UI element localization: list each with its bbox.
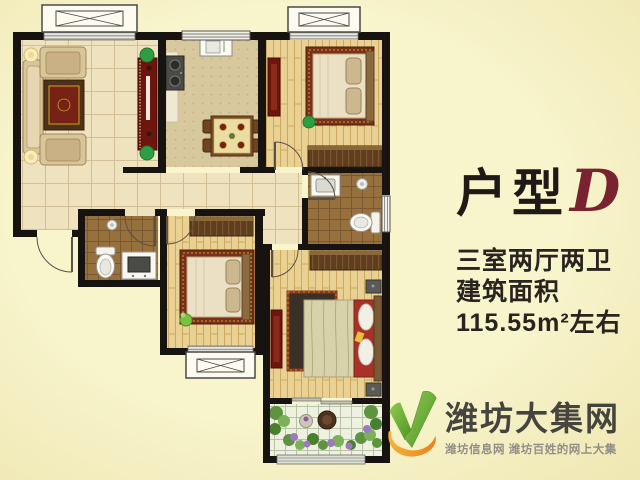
spec-rooms: 三室两厅两卫 [456, 246, 622, 277]
balcony-sliding-door [292, 398, 352, 404]
bathroom2-toilet [350, 212, 380, 233]
bathroom1-vanity [122, 252, 156, 279]
title-letter-d: D [570, 160, 620, 224]
specs-block: 三室两厅两卫 建筑面积 115.55m²左右 [456, 246, 622, 339]
spec-area-value: 115.55m²左右 [456, 308, 622, 339]
bedroom1-wardrobe [308, 146, 382, 167]
bathroom1-toilet [96, 247, 115, 278]
bedroom2-wardrobe [190, 217, 253, 236]
bedroom1-tv-cabinet [268, 58, 280, 116]
master-tv-cabinet [271, 310, 282, 368]
site-name: 潍坊大集网 [445, 402, 620, 437]
shower-head-icon [357, 179, 368, 190]
title-text: 户型 [456, 166, 568, 222]
stove [166, 56, 184, 90]
watermark-text: 潍坊大集网 潍坊信息网 潍坊百姓的网上大集 [445, 390, 620, 457]
kitchen-sink [200, 38, 232, 56]
bay-window-bedroom2 [186, 346, 255, 378]
page-title: 户型 D [456, 166, 620, 230]
coffee-table [44, 80, 84, 130]
master-bed [288, 292, 382, 381]
watermark-logo: 潍坊大集网 潍坊信息网 潍坊百姓的网上大集 [384, 390, 620, 460]
shower-head-2-icon [107, 220, 117, 230]
balcony-railing-window [277, 455, 365, 464]
bay-window-living [42, 5, 137, 40]
tv-cabinet [138, 48, 157, 160]
dining-table [203, 116, 261, 156]
bedroom1-bed [306, 47, 374, 125]
spec-area-label: 建筑面积 [456, 277, 622, 308]
hallway-floor [158, 173, 302, 209]
kitchen-window [182, 31, 250, 40]
master-wardrobe [310, 251, 382, 270]
hallway-floor-2 [263, 209, 302, 244]
bay-window-bedroom1 [288, 7, 360, 39]
bedroom2-bed [180, 250, 254, 324]
checkmark-leaf-icon [384, 390, 440, 460]
page: { "title": { "text": "户型", "suffix_lette… [0, 0, 640, 480]
site-tagline: 潍坊信息网 潍坊百姓的网上大集 [445, 441, 620, 457]
floor-plan [0, 0, 450, 480]
bedroom1-plant [303, 116, 315, 128]
bathroom2-window [382, 196, 390, 232]
